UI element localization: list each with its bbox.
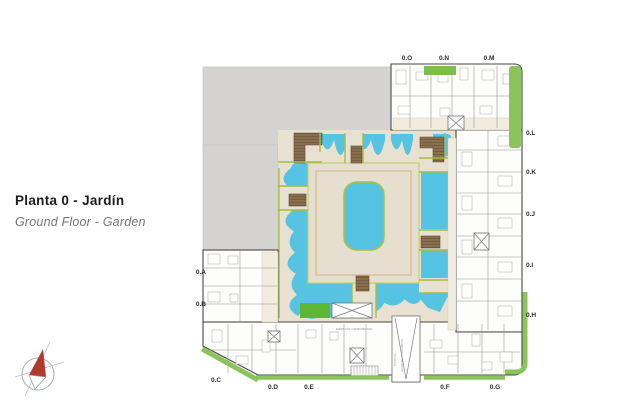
furniture-item xyxy=(500,352,512,362)
furniture-item xyxy=(208,292,220,302)
unit-label-0n: 0.N xyxy=(439,55,449,62)
furniture-item xyxy=(460,68,468,80)
furniture-item xyxy=(498,176,512,186)
unit-label-0j: 0.J xyxy=(526,211,535,218)
wood-deck xyxy=(356,276,369,291)
furniture-item xyxy=(398,106,410,114)
stair-hatch xyxy=(351,366,378,376)
central-pool xyxy=(344,182,384,250)
green-strip xyxy=(509,66,521,148)
wood-deck xyxy=(289,194,306,206)
furniture-item xyxy=(462,284,472,298)
annotation-access: ACCESO VIVIENDAS xyxy=(400,339,404,372)
skylight-grid xyxy=(332,303,372,318)
furniture-item xyxy=(498,306,512,316)
entrance-ramp xyxy=(392,316,420,382)
furniture-item xyxy=(230,294,238,302)
compass-north-needle xyxy=(29,349,46,377)
furniture-item xyxy=(228,256,238,264)
furniture-item xyxy=(498,262,512,272)
unit-label-0i: 0.I xyxy=(526,262,533,269)
furniture-item xyxy=(482,362,492,370)
furniture-item xyxy=(448,356,458,364)
annotation-portal: PORTAL xyxy=(393,353,397,366)
wood-deck xyxy=(351,146,362,163)
furniture-item xyxy=(462,240,472,254)
furniture-item xyxy=(480,106,492,114)
stair-run xyxy=(351,366,378,376)
furniture-item xyxy=(208,254,220,264)
furniture-item xyxy=(430,340,442,348)
unit-label-0g: 0.G xyxy=(490,384,500,391)
unit-label-0b: 0.B xyxy=(196,301,206,308)
unit-label-0e: 0.E xyxy=(304,384,314,391)
annotation-coworking: ESPACIO COWORKING xyxy=(336,327,373,331)
unit-label-0m: 0.M xyxy=(484,55,495,62)
unit-label-0d: 0.D xyxy=(268,384,278,391)
unit-label-0l: 0.L xyxy=(526,130,535,137)
unit-label-0o: 0.O xyxy=(402,55,412,62)
unit-label-0f: 0.F xyxy=(440,384,449,391)
courtyard-garden xyxy=(278,130,458,325)
furniture-item xyxy=(330,332,338,340)
plan-sheet: Planta 0 - Jardín Ground Floor - Garden xyxy=(0,0,630,409)
unit-label-0a: 0.A xyxy=(196,269,206,276)
unit-label-0h: 0.H xyxy=(526,312,536,319)
furniture-item xyxy=(498,218,512,228)
furniture-item xyxy=(440,108,450,116)
terrace-strip xyxy=(262,252,278,322)
furniture-item xyxy=(306,330,316,338)
furniture-item xyxy=(462,152,472,166)
furniture-item xyxy=(482,70,494,80)
compass-rose xyxy=(15,342,64,396)
terrace-strip xyxy=(448,138,456,330)
furniture-item xyxy=(462,196,472,210)
patio-green xyxy=(424,66,456,75)
unit-label-0k: 0.K xyxy=(526,169,536,176)
furniture-item xyxy=(396,70,406,84)
unit-label-0c: 0.C xyxy=(211,377,221,384)
lawn-patch xyxy=(300,303,330,318)
furniture-item xyxy=(472,334,480,346)
furniture-item xyxy=(236,356,248,364)
wood-deck xyxy=(421,236,440,248)
existing-mass-left xyxy=(203,145,278,250)
floor-plan: 0.O0.N0.M0.L0.K0.J0.I0.H0.G0.F0.E0.D0.C0… xyxy=(0,0,630,409)
furniture-item xyxy=(212,330,222,342)
